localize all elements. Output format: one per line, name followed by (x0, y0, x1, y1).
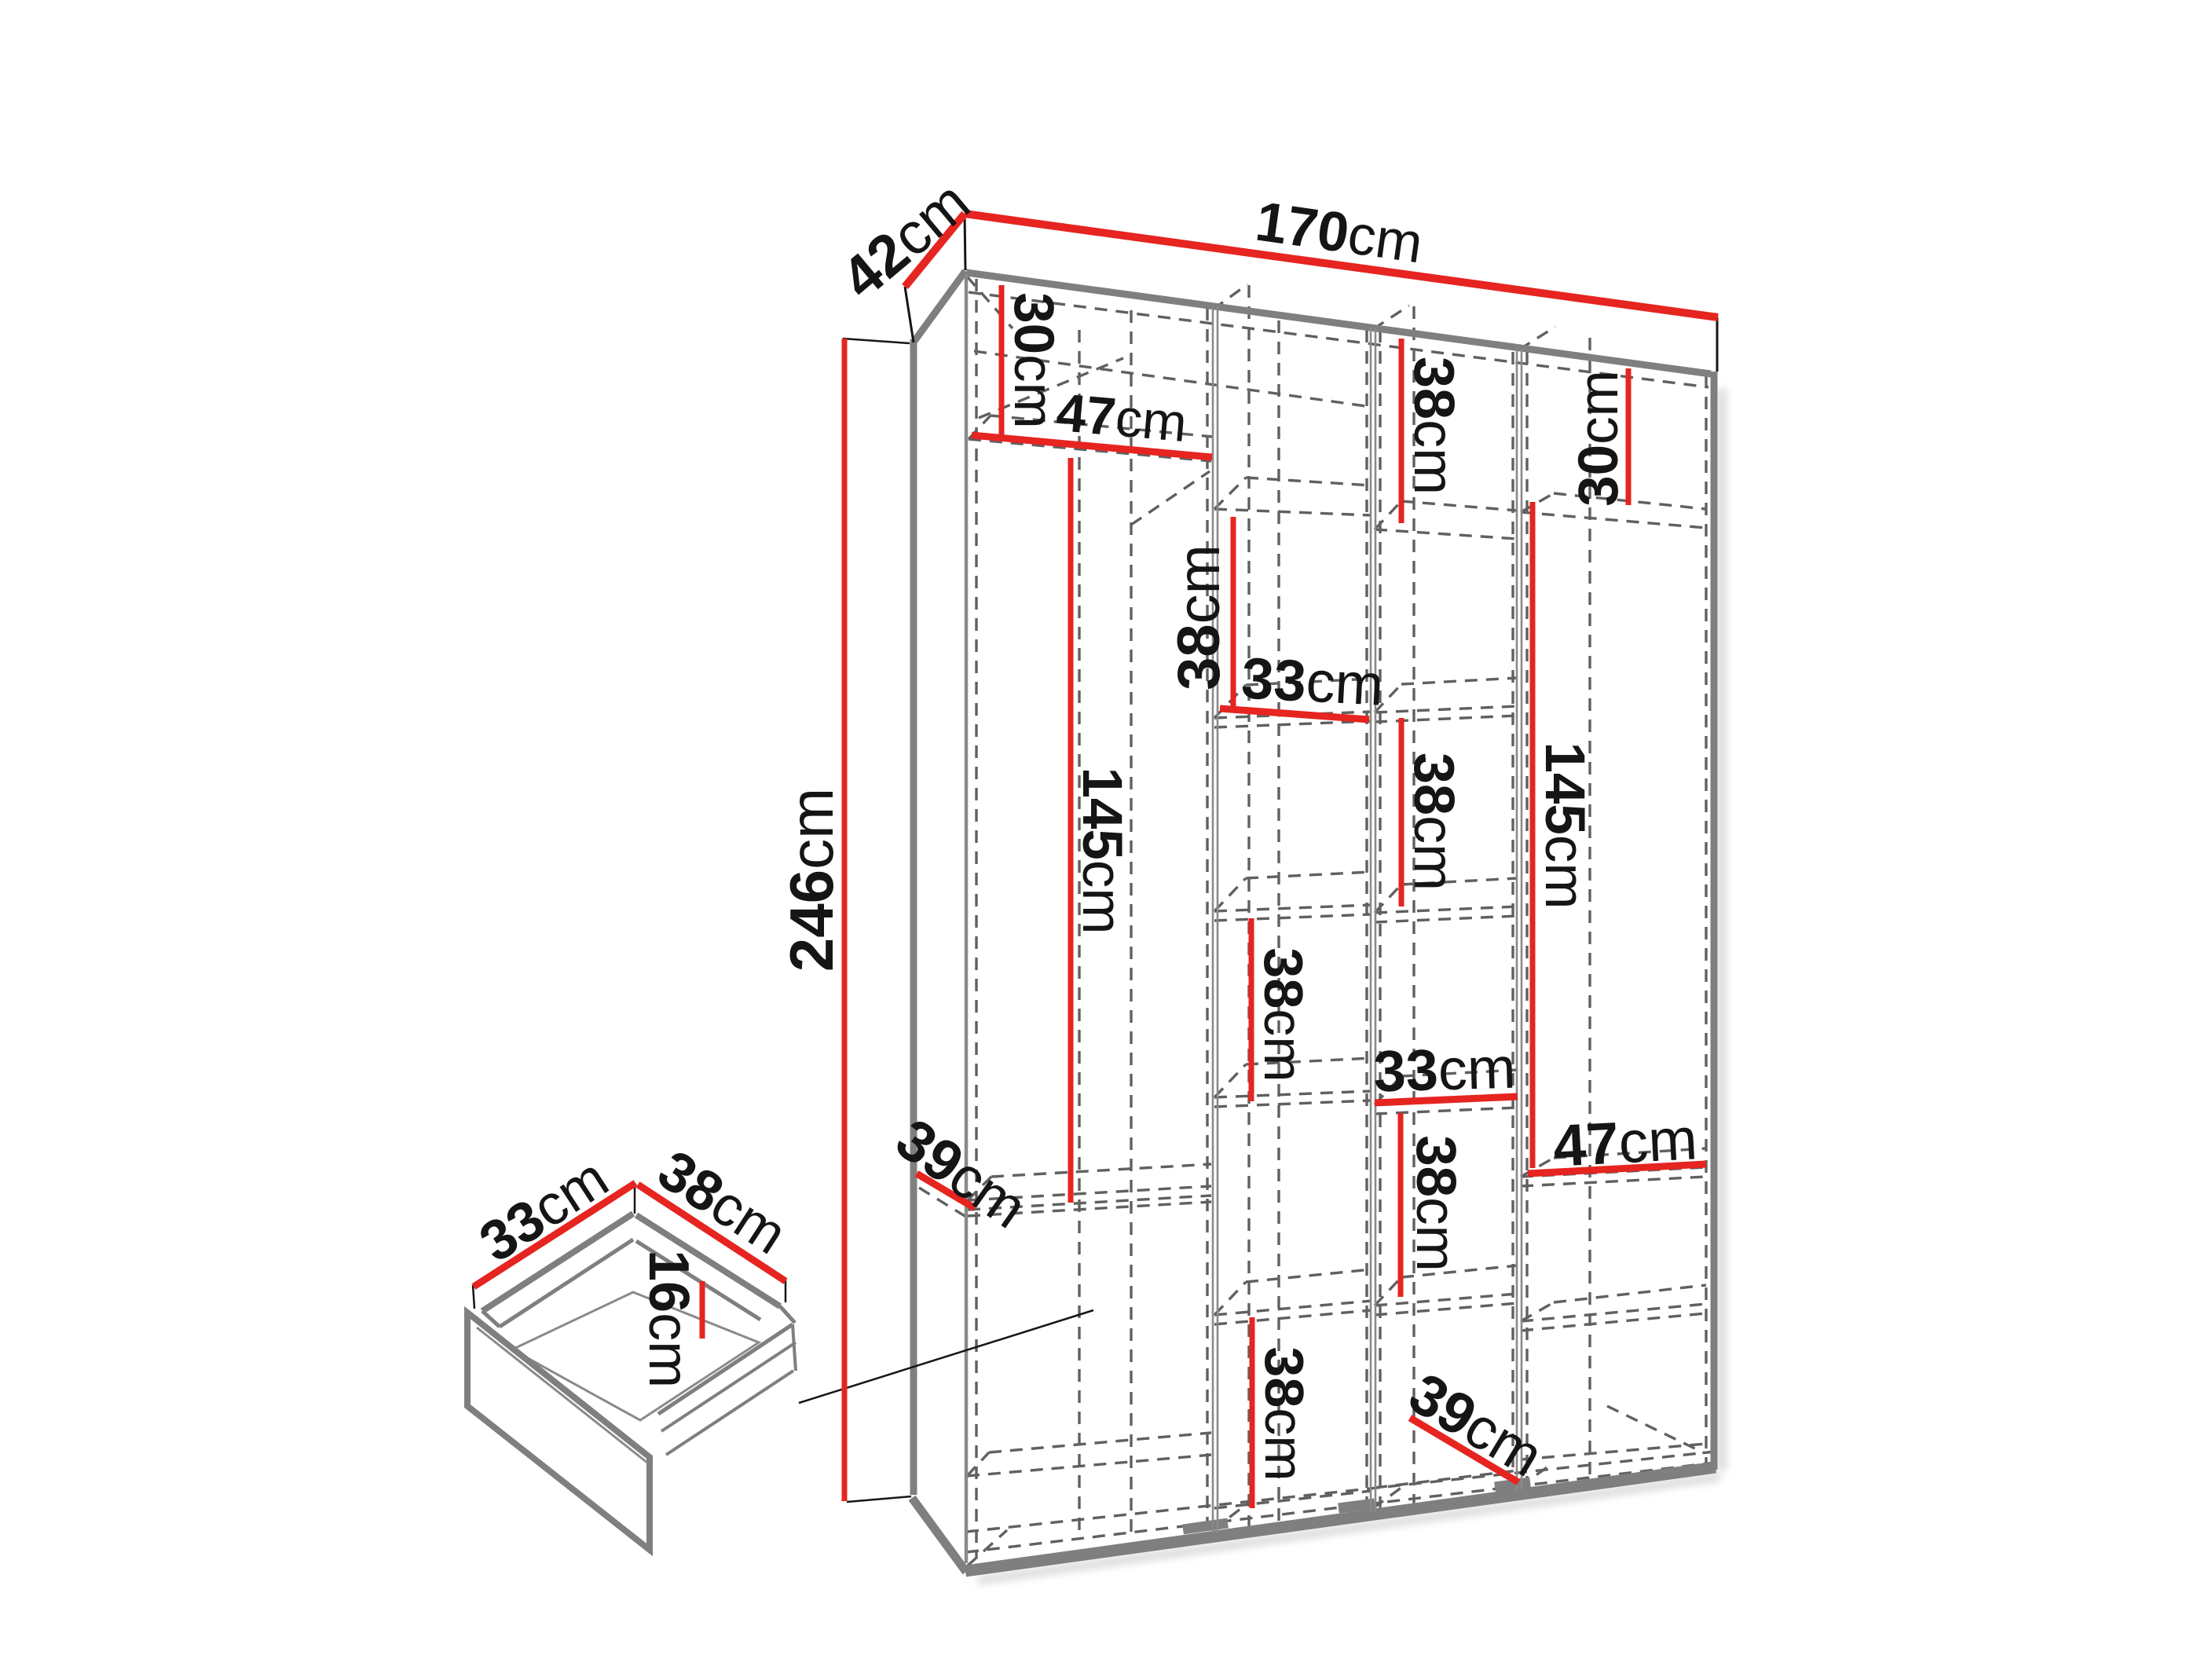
svg-text:33cm: 33cm (1240, 645, 1385, 717)
svg-text:145cm: 145cm (1533, 742, 1595, 909)
svg-text:246cm: 246cm (777, 788, 846, 972)
svg-text:38cm: 38cm (1254, 1346, 1315, 1481)
svg-text:16cm: 16cm (637, 1250, 700, 1388)
svg-text:47cm: 47cm (1551, 1105, 1699, 1178)
svg-text:47cm: 47cm (1054, 383, 1189, 453)
svg-text:38cm: 38cm (1253, 947, 1314, 1082)
svg-text:38cm: 38cm (1166, 544, 1232, 690)
svg-text:145cm: 145cm (1071, 767, 1133, 934)
svg-text:38cm: 38cm (1402, 753, 1465, 891)
svg-text:30cm: 30cm (1568, 370, 1630, 507)
svg-text:38cm: 38cm (1402, 357, 1465, 495)
svg-text:30cm: 30cm (1002, 292, 1064, 429)
svg-text:38cm: 38cm (1404, 1135, 1467, 1272)
svg-text:33cm: 33cm (1372, 1035, 1516, 1104)
